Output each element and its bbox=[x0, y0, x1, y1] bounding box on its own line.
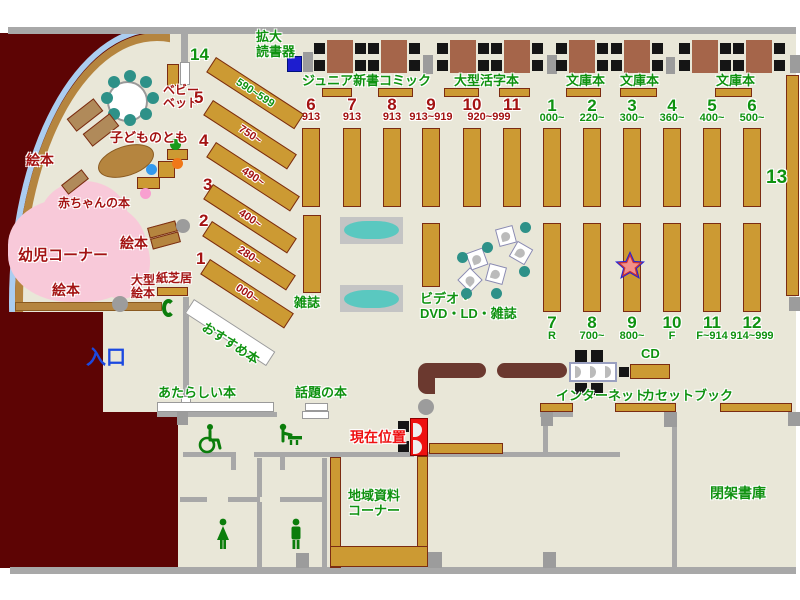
bookshelf bbox=[663, 223, 681, 312]
shelf-range: F bbox=[652, 330, 692, 342]
pillar bbox=[790, 55, 800, 73]
pillar bbox=[666, 57, 675, 74]
shelf-range: 000~ bbox=[532, 112, 572, 124]
picture-books-label: 絵本 bbox=[26, 153, 54, 169]
shelf-range: R bbox=[532, 330, 572, 342]
shelf-range: 920~999 bbox=[461, 111, 517, 123]
reading-table bbox=[450, 40, 476, 73]
bookshelf-13 bbox=[786, 75, 799, 296]
bookshelf bbox=[383, 128, 401, 207]
video-shelf bbox=[422, 223, 440, 287]
bookshelf bbox=[503, 128, 521, 207]
bookshelf bbox=[583, 128, 601, 207]
bookshelf bbox=[743, 223, 761, 312]
picture-books-label: 絵本 bbox=[120, 236, 148, 252]
shelf-range: 400~ bbox=[692, 112, 732, 124]
magnifying-reader-label: 拡大 読書器 bbox=[256, 30, 295, 59]
bookshelf bbox=[543, 128, 561, 207]
wall bbox=[672, 412, 677, 568]
kids-chair bbox=[140, 76, 152, 88]
topic-books-shelf bbox=[305, 403, 328, 411]
wheelchair-icon bbox=[195, 423, 223, 460]
chair bbox=[720, 43, 731, 54]
service-counter bbox=[497, 363, 567, 378]
pillar bbox=[423, 55, 433, 74]
kamishibai-shelf bbox=[157, 287, 188, 296]
kids-corner-bottom-wall bbox=[15, 302, 162, 311]
bookshelf bbox=[302, 128, 320, 207]
reading-table bbox=[746, 40, 772, 73]
bookshelf bbox=[543, 223, 561, 312]
topic-books-shelf bbox=[302, 411, 329, 419]
baby-books-label: 赤ちゃんの本 bbox=[58, 197, 130, 210]
bookshelf bbox=[703, 128, 721, 207]
stool bbox=[519, 266, 530, 277]
wall bbox=[228, 497, 260, 502]
shelf-range: 913 bbox=[332, 111, 372, 123]
chair bbox=[733, 60, 744, 71]
bookshelf bbox=[343, 128, 361, 207]
bookshelf bbox=[540, 403, 573, 412]
bunko-label: 文庫本 bbox=[620, 74, 659, 89]
chair bbox=[409, 43, 420, 54]
woman-toilet-icon bbox=[213, 518, 233, 557]
kodomo-no-tomo-label: 子どものとも bbox=[110, 131, 188, 146]
chair bbox=[597, 60, 608, 71]
wall bbox=[157, 412, 277, 417]
stool bbox=[520, 222, 531, 233]
chair bbox=[491, 60, 502, 71]
kids-corner-area bbox=[0, 33, 170, 312]
wall bbox=[280, 497, 327, 502]
shelf-range: 500~ bbox=[732, 112, 772, 124]
chair bbox=[679, 43, 690, 54]
kamishibai-label: 紙芝居 bbox=[156, 272, 192, 285]
chair bbox=[774, 60, 785, 71]
shelf-number: 14 bbox=[190, 45, 209, 64]
chair bbox=[532, 43, 543, 54]
man-toilet-icon bbox=[287, 518, 305, 557]
chair bbox=[679, 60, 690, 71]
chair bbox=[478, 60, 489, 71]
shelf-number: 1 bbox=[196, 249, 205, 268]
local-corner-label: 地域資料 コーナー bbox=[348, 489, 400, 518]
shelf-range: 700~ bbox=[572, 330, 612, 342]
baby-changing-icon bbox=[276, 421, 304, 460]
bookshelf bbox=[463, 128, 481, 207]
pillar bbox=[788, 412, 800, 426]
chair bbox=[491, 43, 502, 54]
pillar bbox=[418, 399, 434, 415]
reading-table bbox=[381, 40, 407, 73]
cassette-shelf bbox=[615, 403, 676, 412]
topic-books-label: 話題の本 bbox=[295, 386, 347, 401]
bookshelf bbox=[422, 128, 440, 207]
wall bbox=[231, 452, 236, 470]
chair bbox=[437, 43, 448, 54]
chair bbox=[611, 60, 622, 71]
chair bbox=[314, 60, 325, 71]
library-floor-map: 拡大 読書器 ジュニア新書 コミック 大型活字本 文庫本 文庫本 文庫本 6 7… bbox=[0, 0, 800, 600]
pillar bbox=[177, 412, 188, 425]
chair bbox=[368, 43, 379, 54]
service-counter bbox=[429, 363, 486, 378]
shelf-range: 800~ bbox=[612, 330, 652, 342]
reading-table bbox=[569, 40, 595, 73]
kids-chair bbox=[124, 70, 136, 82]
magazine-shelf bbox=[303, 215, 321, 293]
chair bbox=[774, 43, 785, 54]
wall bbox=[180, 497, 207, 502]
pillar bbox=[543, 552, 556, 568]
internet-label: インターネット bbox=[556, 389, 647, 404]
chair bbox=[556, 60, 567, 71]
chair bbox=[591, 350, 603, 362]
kids-step bbox=[137, 177, 160, 189]
bookshelf bbox=[623, 128, 641, 207]
shelf-number: 5 bbox=[194, 88, 203, 107]
magazine-rack-display bbox=[344, 221, 399, 239]
pillar bbox=[541, 412, 553, 426]
shelf-range: 913~919 bbox=[405, 111, 457, 123]
toddler-corner-label: 幼児コーナー bbox=[18, 248, 108, 265]
wall bbox=[322, 458, 327, 497]
bookshelf bbox=[663, 128, 681, 207]
entrance-label: 入口 bbox=[86, 341, 126, 370]
stool bbox=[482, 242, 493, 253]
bookshelf bbox=[743, 128, 761, 207]
chair bbox=[575, 350, 587, 362]
cd-label: CD bbox=[641, 347, 660, 362]
chair bbox=[355, 43, 366, 54]
wall bbox=[181, 34, 188, 62]
magazine-label: 雑誌 bbox=[294, 296, 320, 311]
kids-chair bbox=[147, 92, 159, 104]
wall bbox=[257, 458, 262, 497]
chair bbox=[532, 60, 543, 71]
baby-bed bbox=[180, 62, 190, 85]
shelf-range: 300~ bbox=[612, 112, 652, 124]
junior-shinsho-label: ジュニア新書 bbox=[302, 74, 379, 89]
kamishibai-stand bbox=[162, 299, 175, 317]
wall bbox=[322, 502, 327, 568]
cd-shelf bbox=[630, 364, 670, 379]
reading-table bbox=[692, 40, 718, 73]
stool bbox=[461, 288, 472, 299]
pillar bbox=[428, 552, 442, 568]
bunko-label: 文庫本 bbox=[716, 74, 755, 89]
comic-label: コミック bbox=[379, 74, 431, 89]
kids-chair bbox=[124, 114, 136, 126]
pillar bbox=[303, 52, 313, 72]
closed-stacks-label: 閉架書庫 bbox=[710, 486, 766, 502]
bunko-label: 文庫本 bbox=[566, 74, 605, 89]
kids-chair bbox=[108, 76, 120, 88]
bookshelf bbox=[429, 443, 503, 454]
chair bbox=[368, 60, 379, 71]
chair bbox=[619, 367, 629, 377]
kids-chair bbox=[101, 92, 113, 104]
wall bbox=[257, 502, 262, 568]
chair bbox=[355, 60, 366, 71]
wall bbox=[10, 567, 796, 574]
new-books-label: あたらしい本 bbox=[158, 386, 236, 401]
bookshelf bbox=[583, 223, 601, 312]
chair bbox=[437, 60, 448, 71]
large-picture-books-label: 大型 絵本 bbox=[131, 274, 155, 301]
large-print-label: 大型活字本 bbox=[454, 74, 519, 89]
wall-block-bottom-left bbox=[0, 412, 178, 568]
current-location-star bbox=[613, 249, 647, 283]
pillar bbox=[176, 219, 190, 233]
stool bbox=[491, 288, 502, 299]
chair bbox=[652, 60, 663, 71]
cushion bbox=[140, 188, 151, 199]
picture-books-label: 絵本 bbox=[52, 283, 80, 299]
cushion bbox=[172, 158, 183, 169]
chair bbox=[409, 60, 420, 71]
local-corner-shelf bbox=[417, 456, 428, 547]
magazine-rack-display bbox=[344, 290, 399, 308]
kids-chair bbox=[140, 108, 152, 120]
stool bbox=[457, 252, 468, 263]
bookshelf bbox=[703, 223, 721, 312]
wall bbox=[8, 27, 796, 34]
chair bbox=[556, 43, 567, 54]
chair bbox=[314, 43, 325, 54]
shelf-range: 220~ bbox=[572, 112, 612, 124]
new-books-shelf bbox=[157, 402, 274, 412]
bookshelf bbox=[720, 403, 792, 412]
chair bbox=[611, 43, 622, 54]
cassette-label: カセットブック bbox=[642, 389, 733, 404]
pillar bbox=[664, 412, 677, 427]
pillar bbox=[789, 297, 800, 311]
chair bbox=[478, 43, 489, 54]
cushion bbox=[146, 164, 157, 175]
shelf-range: 360~ bbox=[652, 112, 692, 124]
reading-table bbox=[624, 40, 650, 73]
chair bbox=[652, 43, 663, 54]
chair bbox=[597, 43, 608, 54]
local-corner-shelf bbox=[330, 546, 428, 567]
reading-table bbox=[327, 40, 353, 73]
shelf-range: 914~999 bbox=[724, 330, 780, 342]
chair bbox=[733, 43, 744, 54]
pillar bbox=[112, 296, 128, 312]
reading-table bbox=[504, 40, 530, 73]
current-location-label: 現在位置 bbox=[350, 427, 406, 447]
shelf-number: 4 bbox=[199, 131, 208, 150]
chair bbox=[720, 60, 731, 71]
shelf-13-label: 13 bbox=[766, 167, 787, 188]
